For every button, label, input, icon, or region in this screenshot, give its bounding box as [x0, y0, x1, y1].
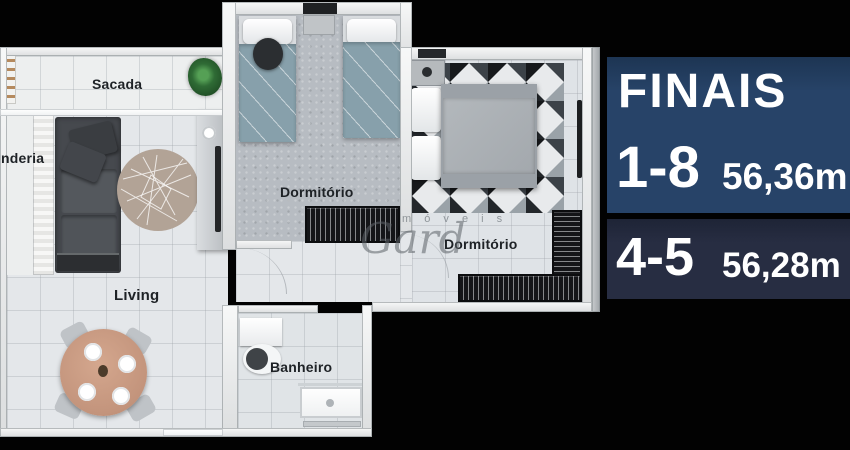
shower-tray	[300, 387, 362, 418]
outer-wall-right	[592, 47, 600, 312]
panel-area-2: 56,28m	[722, 248, 841, 283]
window-bedroom1	[303, 3, 337, 14]
plate	[84, 343, 102, 361]
bed-single-left	[239, 16, 296, 142]
toilet-tank	[240, 318, 282, 346]
wall	[0, 47, 7, 437]
panel-units-1: 1-8	[616, 139, 700, 197]
balcony-label: Sacada	[92, 76, 142, 92]
wall	[222, 305, 238, 437]
bed-pillow	[347, 19, 396, 44]
panel-title: FINAIS	[618, 68, 787, 116]
centerpiece	[98, 365, 108, 377]
living-label: Living	[114, 287, 159, 304]
window-bedroom2	[418, 49, 446, 58]
wall	[236, 240, 292, 249]
wall	[362, 305, 372, 437]
wall	[0, 47, 230, 56]
laundry-label: nderia	[1, 150, 44, 166]
nightstand	[303, 15, 335, 35]
towel-bar	[303, 421, 361, 427]
wall	[582, 47, 592, 312]
toilet-lid	[246, 348, 268, 370]
bed-double	[441, 84, 537, 188]
wall	[238, 305, 318, 313]
plate	[112, 387, 130, 405]
dining-table	[60, 329, 147, 416]
bed-single-right	[343, 16, 400, 138]
laundry-door	[33, 115, 54, 275]
bed-blanket	[343, 42, 400, 138]
info-panel-row1: FINAIS 1-8 56,36m	[607, 57, 850, 213]
wall	[400, 47, 412, 232]
panel-area-1: 56,36m	[722, 158, 848, 195]
window-living	[163, 429, 223, 436]
panel-units-2: 4-5	[616, 230, 694, 284]
nightstand2	[411, 60, 445, 86]
speaker	[202, 126, 216, 140]
info-panel-row2: 4-5 56,28m	[607, 219, 850, 299]
bed-double-pillow	[411, 88, 441, 132]
tv	[215, 146, 221, 232]
floorplan-image: Sacada nderia Dormitório Dormitório Livi…	[0, 0, 850, 450]
wardrobe-bedroom2-bottom	[458, 274, 582, 302]
watermark-script: Gard	[360, 214, 466, 263]
balcony-railing	[0, 109, 228, 116]
bed-item	[253, 38, 283, 70]
bedroom1-label: Dormitório	[280, 184, 354, 200]
sofa	[55, 117, 121, 273]
sofa-base	[57, 253, 119, 271]
lamp	[422, 67, 432, 77]
shower-drain	[326, 399, 334, 407]
bed-blanket	[443, 98, 535, 174]
plate	[118, 355, 136, 373]
bathroom-label: Banheiro	[270, 359, 332, 375]
laundry-floor	[7, 115, 33, 275]
shower-glass	[298, 383, 364, 386]
bed-double-pillow	[411, 136, 441, 180]
plant-icon	[188, 58, 222, 96]
wardrobe-bedroom2-side	[552, 210, 582, 277]
plate	[78, 383, 96, 401]
round-rug	[117, 149, 199, 231]
wall	[372, 302, 592, 312]
wall	[222, 2, 236, 250]
